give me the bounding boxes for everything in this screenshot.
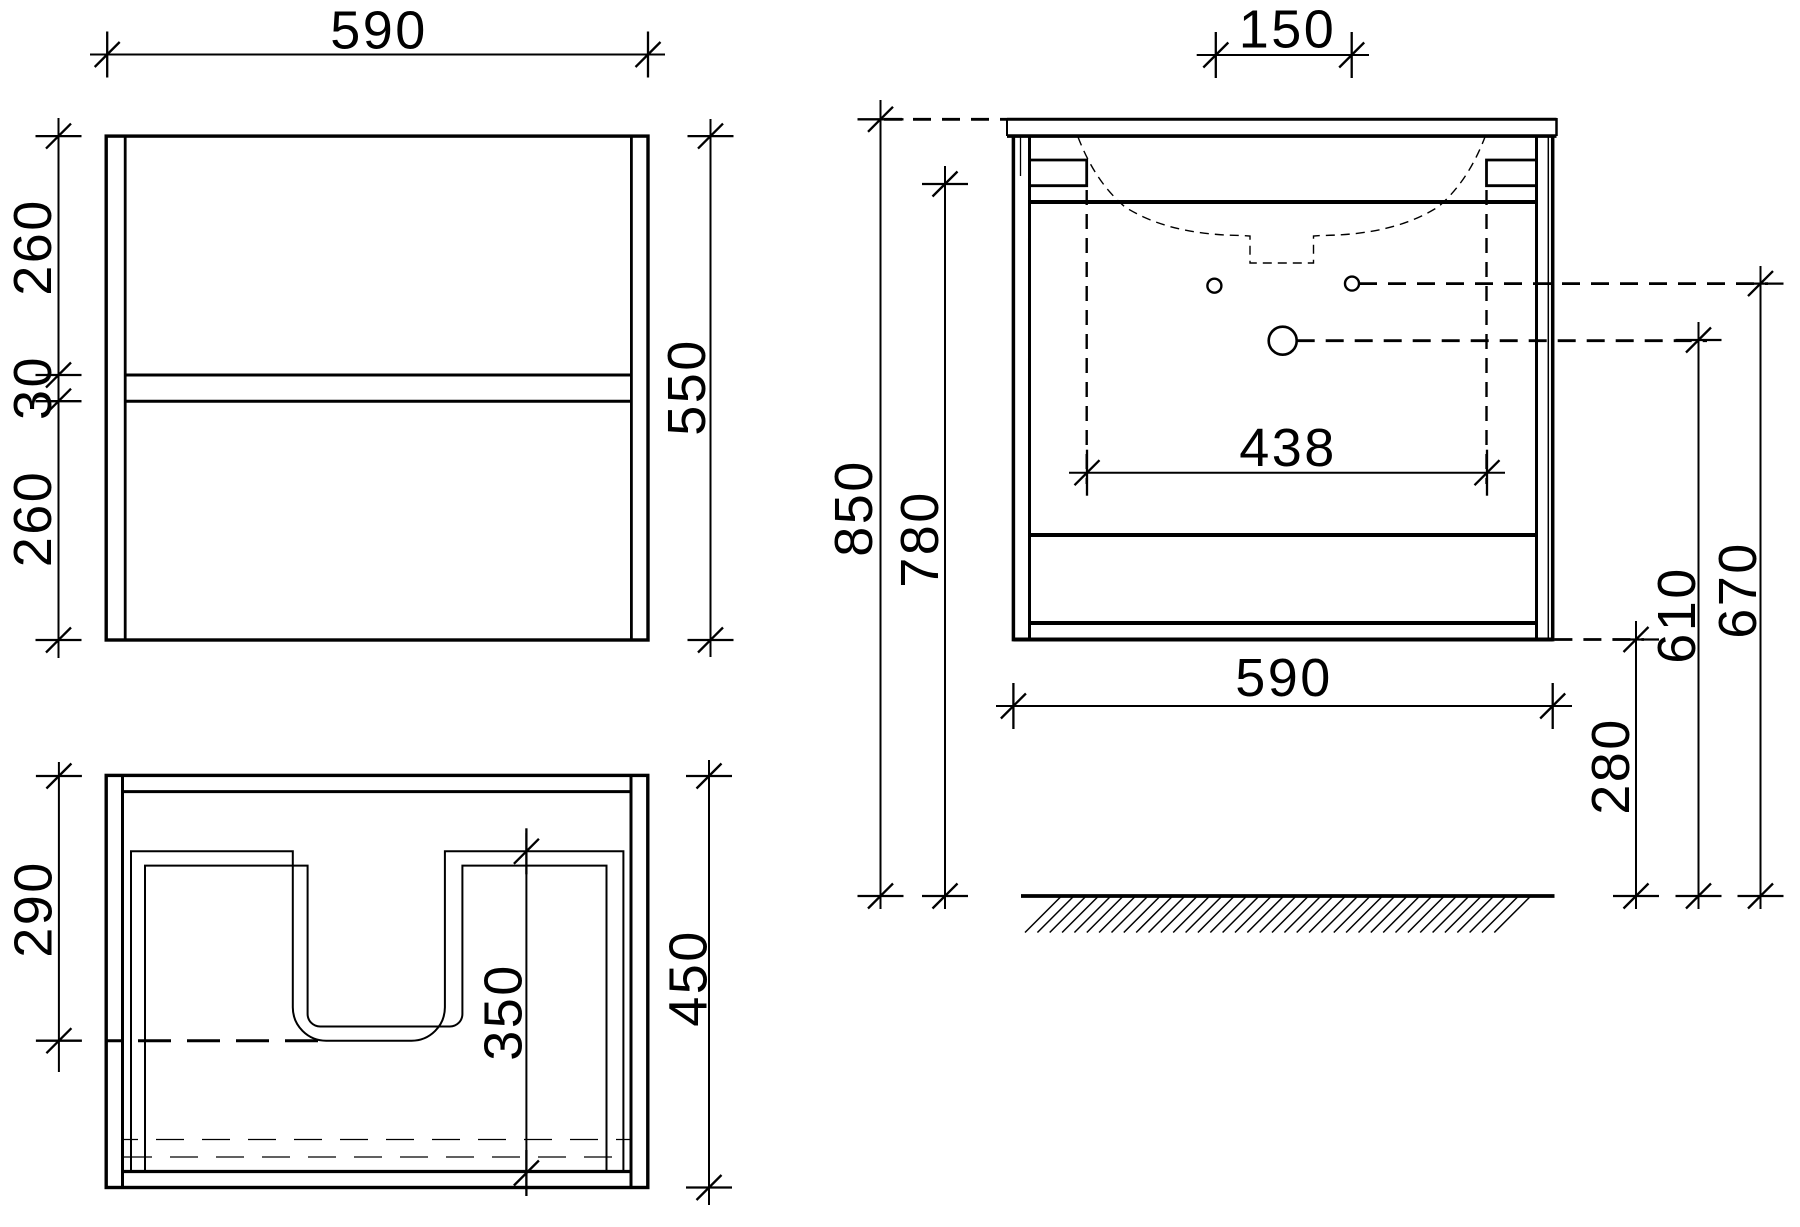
svg-text:260: 260 [3,470,63,568]
svg-text:590: 590 [1235,648,1333,708]
svg-text:438: 438 [1239,418,1337,478]
svg-text:30: 30 [3,355,63,420]
svg-text:150: 150 [1239,0,1337,60]
svg-text:350: 350 [474,963,534,1061]
svg-text:550: 550 [657,338,717,436]
svg-text:260: 260 [3,198,63,296]
svg-text:850: 850 [824,459,884,557]
svg-text:590: 590 [330,1,428,61]
svg-text:290: 290 [4,860,64,958]
svg-text:450: 450 [659,929,719,1027]
svg-text:280: 280 [1581,717,1641,815]
svg-text:780: 780 [890,490,950,588]
svg-text:610: 610 [1647,566,1707,664]
svg-text:670: 670 [1708,541,1768,639]
